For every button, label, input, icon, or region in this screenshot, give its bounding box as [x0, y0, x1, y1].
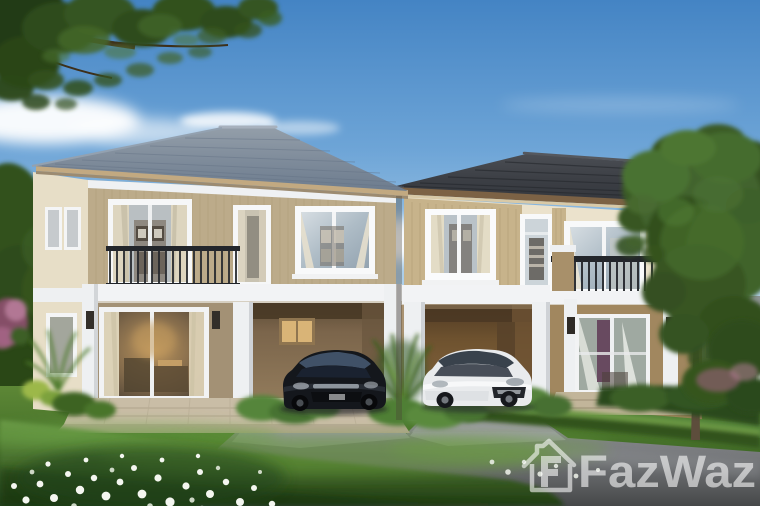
svg-text:FazWaz: FazWaz [578, 446, 756, 497]
